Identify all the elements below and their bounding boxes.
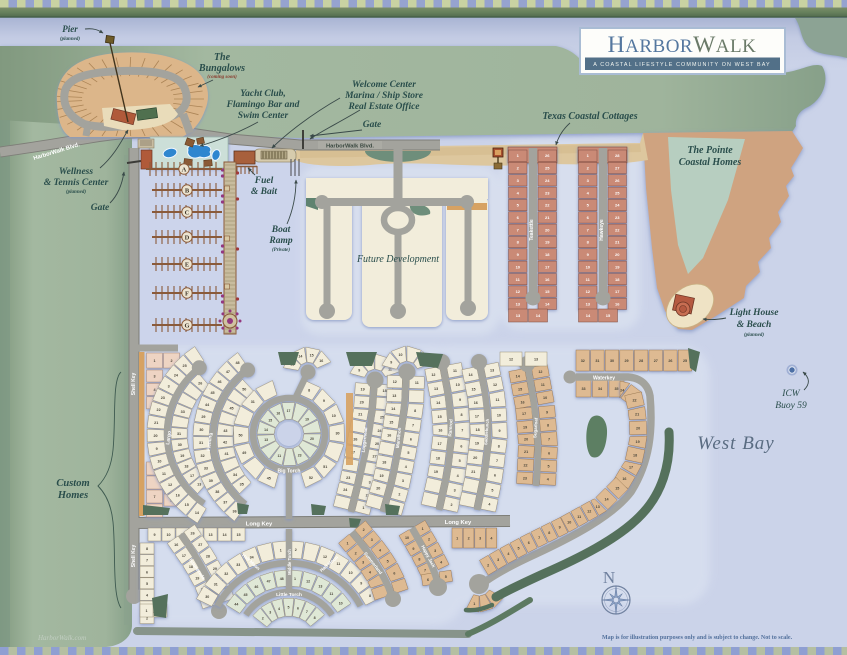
svg-text:10: 10: [516, 264, 521, 269]
svg-text:11: 11: [329, 592, 333, 596]
svg-text:31: 31: [214, 583, 218, 587]
svg-text:HARBORWALK: HARBORWALK: [608, 32, 757, 58]
svg-text:22: 22: [545, 203, 550, 208]
svg-text:15: 15: [438, 415, 442, 419]
svg-text:26: 26: [198, 382, 202, 386]
svg-text:C: C: [185, 209, 190, 216]
svg-text:19: 19: [475, 442, 479, 446]
svg-text:17: 17: [615, 289, 620, 294]
svg-text:16: 16: [176, 494, 180, 498]
svg-text:3: 3: [369, 480, 371, 484]
svg-text:21: 21: [615, 240, 620, 245]
svg-text:22: 22: [615, 227, 620, 232]
svg-text:3: 3: [168, 384, 170, 388]
svg-text:46: 46: [254, 585, 258, 589]
svg-text:21: 21: [545, 215, 550, 220]
svg-text:10: 10: [157, 460, 161, 464]
svg-text:2: 2: [428, 538, 430, 542]
svg-text:7: 7: [153, 495, 155, 499]
svg-text:10: 10: [349, 571, 353, 575]
svg-text:17: 17: [287, 409, 291, 413]
svg-text:A: A: [182, 166, 187, 173]
svg-text:24: 24: [545, 178, 550, 183]
svg-text:23: 23: [615, 215, 620, 220]
svg-text:3: 3: [497, 558, 499, 562]
svg-text:27: 27: [198, 543, 202, 547]
svg-text:18: 18: [382, 461, 386, 465]
svg-text:3: 3: [153, 375, 155, 379]
svg-text:37: 37: [223, 500, 227, 504]
svg-text:(planned): (planned): [744, 333, 764, 338]
svg-text:50: 50: [242, 388, 246, 392]
svg-text:30: 30: [610, 359, 614, 363]
svg-text:45: 45: [210, 391, 214, 395]
svg-text:13: 13: [596, 505, 600, 509]
svg-text:27: 27: [654, 359, 658, 363]
svg-text:D: D: [185, 234, 190, 241]
svg-text:1: 1: [346, 542, 348, 546]
svg-text:25: 25: [183, 364, 187, 368]
svg-text:11: 11: [577, 515, 581, 519]
svg-text:16: 16: [615, 301, 620, 306]
svg-text:19: 19: [305, 417, 309, 421]
svg-text:8: 8: [498, 444, 500, 448]
svg-text:45: 45: [229, 407, 233, 411]
svg-text:28: 28: [639, 359, 643, 363]
svg-text:8: 8: [308, 388, 310, 392]
svg-text:17: 17: [522, 412, 526, 416]
svg-text:14: 14: [586, 313, 591, 318]
svg-text:1: 1: [153, 359, 155, 363]
svg-text:47: 47: [226, 370, 230, 374]
svg-text:(Private): (Private): [272, 248, 290, 253]
svg-text:10: 10: [339, 602, 343, 606]
svg-text:45: 45: [244, 593, 248, 597]
svg-text:19: 19: [615, 264, 620, 269]
svg-text:A COASTAL LIFESTYLE COMMUNITY: A COASTAL LIFESTYLE COMMUNITY ON WEST BA…: [593, 62, 771, 68]
svg-text:29: 29: [624, 359, 628, 363]
svg-text:8: 8: [460, 413, 462, 417]
svg-text:47: 47: [267, 580, 271, 584]
svg-text:N: N: [603, 568, 615, 587]
svg-text:16: 16: [174, 543, 178, 547]
svg-text:12: 12: [516, 289, 521, 294]
svg-text:1: 1: [280, 548, 282, 552]
svg-text:6: 6: [297, 607, 299, 611]
svg-text:3: 3: [434, 549, 436, 553]
svg-text:27: 27: [615, 166, 620, 171]
svg-text:13: 13: [516, 313, 521, 318]
svg-text:14: 14: [545, 301, 550, 306]
svg-text:26: 26: [668, 359, 672, 363]
svg-text:11: 11: [453, 369, 457, 373]
svg-text:20: 20: [473, 456, 477, 460]
svg-text:16: 16: [319, 359, 323, 363]
svg-text:7: 7: [548, 437, 550, 441]
svg-text:2: 2: [398, 493, 400, 497]
svg-text:21: 21: [154, 421, 158, 425]
svg-text:15: 15: [545, 289, 550, 294]
svg-text:9: 9: [412, 547, 414, 551]
svg-text:20: 20: [310, 437, 314, 441]
svg-text:G: G: [184, 322, 189, 329]
svg-text:19: 19: [523, 425, 527, 429]
svg-text:51: 51: [323, 465, 327, 469]
svg-text:30: 30: [335, 432, 339, 436]
svg-text:14: 14: [536, 313, 541, 318]
svg-text:20: 20: [360, 400, 364, 404]
svg-text:Custom: Custom: [56, 478, 89, 489]
svg-text:32: 32: [224, 572, 228, 576]
svg-text:Flamingo Bar and: Flamingo Bar and: [226, 100, 300, 110]
svg-text:6: 6: [146, 570, 148, 574]
svg-text:13: 13: [208, 533, 212, 537]
svg-text:7: 7: [306, 610, 308, 614]
svg-text:Future Development: Future Development: [356, 254, 439, 265]
svg-text:Pier: Pier: [62, 24, 78, 34]
svg-text:25: 25: [380, 416, 384, 420]
svg-text:3: 3: [454, 489, 456, 493]
svg-text:10: 10: [586, 264, 591, 269]
svg-text:8: 8: [146, 547, 148, 551]
svg-text:Wellness: Wellness: [59, 167, 93, 177]
svg-text:1: 1: [422, 527, 424, 531]
svg-text:9: 9: [459, 398, 461, 402]
svg-text:42: 42: [223, 440, 227, 444]
svg-text:19: 19: [636, 440, 640, 444]
svg-text:13: 13: [318, 585, 322, 589]
svg-text:32: 32: [201, 454, 205, 458]
svg-text:18: 18: [615, 277, 620, 282]
svg-text:Shell Key: Shell Key: [131, 373, 137, 396]
svg-text:33: 33: [236, 563, 240, 567]
svg-text:5: 5: [459, 459, 461, 463]
svg-text:19: 19: [434, 470, 438, 474]
svg-text:6: 6: [528, 541, 530, 545]
svg-text:18: 18: [545, 252, 550, 257]
svg-text:25: 25: [615, 190, 620, 195]
svg-text:Ramp: Ramp: [268, 236, 292, 246]
svg-text:Little Torch: Little Torch: [276, 592, 302, 598]
svg-text:20: 20: [524, 438, 528, 442]
svg-text:25: 25: [545, 166, 550, 171]
svg-text:17: 17: [629, 466, 633, 470]
svg-text:15: 15: [185, 503, 189, 507]
svg-text:8: 8: [414, 409, 416, 413]
svg-text:12: 12: [509, 358, 513, 362]
svg-text:& Bait: & Bait: [251, 187, 277, 197]
svg-text:31: 31: [199, 441, 203, 445]
svg-text:9: 9: [323, 399, 325, 403]
svg-text:Middle Torch: Middle Torch: [287, 549, 292, 575]
svg-text:1: 1: [456, 537, 458, 541]
svg-text:3: 3: [479, 537, 481, 541]
svg-text:Welcome Center: Welcome Center: [352, 80, 416, 90]
svg-text:12: 12: [431, 373, 435, 377]
svg-text:13: 13: [534, 358, 538, 362]
svg-text:5: 5: [387, 559, 389, 563]
svg-text:5: 5: [445, 575, 447, 579]
svg-text:24: 24: [615, 203, 620, 208]
svg-text:23: 23: [545, 190, 550, 195]
svg-text:11: 11: [541, 383, 545, 387]
svg-text:& Tennis Center: & Tennis Center: [44, 178, 109, 188]
svg-text:16: 16: [520, 400, 524, 404]
svg-text:5: 5: [146, 582, 148, 586]
svg-text:10: 10: [497, 413, 501, 417]
svg-text:11: 11: [336, 562, 340, 566]
svg-text:15: 15: [268, 418, 272, 422]
svg-text:10: 10: [166, 533, 170, 537]
svg-text:21: 21: [635, 412, 639, 416]
svg-text:2: 2: [146, 617, 148, 621]
svg-text:19: 19: [545, 240, 550, 245]
svg-text:30: 30: [199, 428, 203, 432]
svg-text:19: 19: [379, 474, 383, 478]
svg-text:11: 11: [388, 368, 392, 372]
svg-text:15: 15: [615, 487, 619, 491]
svg-text:15: 15: [471, 387, 475, 391]
svg-text:Big Torch: Big Torch: [278, 469, 301, 475]
svg-text:12: 12: [493, 383, 497, 387]
svg-text:18: 18: [476, 428, 480, 432]
svg-text:8: 8: [314, 616, 316, 620]
svg-text:23: 23: [523, 477, 527, 481]
svg-text:26: 26: [545, 153, 550, 158]
svg-text:12: 12: [306, 579, 310, 583]
svg-text:46: 46: [217, 380, 221, 384]
svg-text:13: 13: [434, 387, 438, 391]
svg-text:19: 19: [180, 454, 184, 458]
svg-text:6: 6: [410, 437, 412, 441]
svg-text:15: 15: [310, 353, 314, 357]
svg-text:15: 15: [606, 313, 611, 318]
svg-text:13: 13: [516, 301, 521, 306]
svg-text:E: E: [185, 261, 189, 268]
svg-text:15: 15: [389, 420, 393, 424]
svg-text:Long Key: Long Key: [445, 520, 472, 526]
svg-text:13: 13: [392, 394, 396, 398]
svg-text:9: 9: [559, 526, 561, 530]
svg-text:14: 14: [264, 428, 268, 432]
svg-text:6: 6: [393, 572, 395, 576]
svg-text:13: 13: [197, 483, 201, 487]
svg-text:20: 20: [375, 442, 379, 446]
svg-text:3: 3: [362, 561, 364, 565]
svg-text:12: 12: [586, 289, 591, 294]
svg-text:9: 9: [153, 533, 155, 537]
svg-text:17: 17: [475, 415, 479, 419]
svg-text:21: 21: [471, 470, 475, 474]
svg-text:16: 16: [438, 428, 442, 432]
svg-text:Homes: Homes: [57, 490, 88, 501]
svg-text:7: 7: [146, 559, 148, 563]
svg-text:6: 6: [494, 474, 496, 478]
svg-text:14: 14: [298, 355, 302, 359]
svg-text:7: 7: [412, 424, 414, 428]
svg-text:50: 50: [238, 433, 242, 437]
svg-text:10: 10: [456, 383, 460, 387]
svg-text:The Pointe: The Pointe: [687, 145, 733, 156]
svg-text:7: 7: [461, 429, 463, 433]
svg-text:25: 25: [683, 359, 687, 363]
svg-text:16: 16: [474, 401, 478, 405]
svg-text:3: 3: [402, 479, 404, 483]
svg-text:41: 41: [225, 452, 229, 456]
svg-text:B: B: [185, 187, 190, 194]
svg-text:2: 2: [487, 564, 489, 568]
svg-text:(planned): (planned): [66, 190, 86, 195]
svg-text:Swim Center: Swim Center: [238, 111, 289, 121]
svg-text:6: 6: [548, 451, 550, 455]
svg-text:9: 9: [360, 582, 362, 586]
svg-text:18: 18: [184, 464, 188, 468]
svg-text:26: 26: [353, 438, 357, 442]
svg-text:16: 16: [276, 412, 280, 416]
svg-text:Waterkey: Waterkey: [593, 376, 615, 382]
svg-text:Coastal Homes: Coastal Homes: [679, 157, 742, 168]
svg-text:38: 38: [215, 490, 219, 494]
svg-text:12: 12: [538, 370, 542, 374]
svg-text:22: 22: [632, 399, 636, 403]
svg-text:7: 7: [496, 459, 498, 463]
svg-text:22: 22: [157, 408, 161, 412]
svg-text:13: 13: [490, 369, 494, 373]
svg-text:30: 30: [205, 595, 209, 599]
svg-text:2: 2: [295, 548, 297, 552]
svg-text:49: 49: [242, 451, 246, 455]
svg-text:Light House: Light House: [729, 308, 780, 318]
svg-text:2: 2: [366, 493, 368, 497]
svg-text:11: 11: [162, 472, 166, 476]
svg-text:8: 8: [548, 531, 550, 535]
svg-text:1: 1: [473, 602, 475, 606]
svg-text:17: 17: [190, 474, 194, 478]
svg-text:Buoy 59: Buoy 59: [775, 401, 807, 411]
svg-text:1: 1: [145, 609, 147, 613]
svg-text:7: 7: [538, 536, 540, 540]
svg-text:16: 16: [387, 434, 391, 438]
svg-text:17: 17: [438, 442, 442, 446]
svg-text:Fuel: Fuel: [254, 176, 274, 186]
svg-text:16: 16: [545, 277, 550, 282]
svg-text:16: 16: [622, 477, 626, 481]
svg-text:HarborWalk.com: HarborWalk.com: [37, 634, 86, 642]
svg-text:17: 17: [182, 554, 186, 558]
svg-text:23: 23: [346, 476, 350, 480]
svg-text:11: 11: [278, 454, 282, 458]
svg-text:11: 11: [496, 398, 500, 402]
svg-text:32: 32: [581, 359, 585, 363]
svg-text:19: 19: [195, 576, 199, 580]
svg-text:33: 33: [581, 387, 585, 391]
svg-text:8: 8: [547, 424, 549, 428]
svg-text:44: 44: [234, 603, 238, 607]
svg-text:18: 18: [383, 389, 387, 393]
svg-text:10: 10: [543, 396, 547, 400]
svg-text:The: The: [214, 52, 231, 63]
svg-text:Gate: Gate: [91, 203, 110, 213]
svg-text:31: 31: [251, 400, 255, 404]
svg-text:20: 20: [545, 227, 550, 232]
svg-text:28: 28: [615, 153, 620, 158]
svg-text:36: 36: [233, 510, 237, 514]
svg-text:39: 39: [209, 479, 213, 483]
svg-text:18: 18: [436, 456, 440, 460]
svg-text:10: 10: [332, 414, 336, 418]
svg-text:2: 2: [170, 359, 172, 363]
svg-text:12: 12: [393, 380, 397, 384]
svg-text:18: 18: [633, 453, 637, 457]
svg-text:33: 33: [181, 410, 185, 414]
svg-text:33: 33: [204, 467, 208, 471]
svg-text:Gate: Gate: [363, 120, 382, 130]
svg-text:9: 9: [498, 429, 500, 433]
svg-text:31: 31: [595, 359, 599, 363]
svg-text:3: 3: [371, 538, 373, 542]
svg-text:Shell Key: Shell Key: [131, 545, 137, 568]
svg-text:12: 12: [323, 555, 327, 559]
svg-text:8: 8: [369, 594, 371, 598]
svg-text:17: 17: [545, 264, 550, 269]
svg-text:5: 5: [491, 488, 493, 492]
svg-text:23: 23: [298, 453, 302, 457]
svg-text:35: 35: [240, 483, 244, 487]
svg-text:9: 9: [156, 447, 158, 451]
svg-text:22: 22: [523, 463, 527, 467]
svg-text:29: 29: [201, 415, 205, 419]
svg-text:2: 2: [355, 551, 357, 555]
svg-text:HarborWalk Blvd.: HarborWalk Blvd.: [326, 144, 374, 150]
svg-text:1: 1: [294, 577, 296, 581]
svg-text:48: 48: [235, 361, 239, 365]
svg-text:ICW: ICW: [781, 389, 801, 399]
svg-text:Teakettle: Teakettle: [529, 219, 535, 241]
svg-text:9: 9: [358, 369, 360, 373]
svg-text:12: 12: [168, 483, 172, 487]
svg-text:3: 3: [269, 611, 271, 615]
svg-text:2: 2: [363, 528, 365, 532]
svg-text:Map is for illustration purpos: Map is for illustration purposes only an…: [602, 635, 793, 641]
svg-text:6: 6: [427, 578, 429, 582]
svg-text:20: 20: [153, 434, 157, 438]
svg-text:10: 10: [567, 521, 571, 525]
svg-text:20: 20: [376, 487, 380, 491]
svg-text:Yacht Club,: Yacht Club,: [240, 89, 286, 99]
svg-text:19: 19: [361, 387, 365, 391]
svg-text:(planned): (planned): [60, 37, 80, 42]
svg-text:10: 10: [399, 353, 403, 357]
svg-text:2: 2: [450, 503, 452, 507]
svg-text:43: 43: [223, 429, 227, 433]
svg-text:Marina / Ship Store: Marina / Ship Store: [344, 91, 424, 101]
svg-text:4: 4: [278, 607, 280, 611]
svg-text:Boat: Boat: [271, 225, 291, 235]
svg-text:48: 48: [280, 577, 284, 581]
svg-text:15: 15: [518, 387, 522, 391]
svg-text:52: 52: [309, 476, 313, 480]
svg-text:10: 10: [405, 536, 409, 540]
svg-text:8: 8: [418, 558, 420, 562]
svg-text:West Bay: West Bay: [697, 433, 774, 454]
svg-text:11: 11: [415, 381, 419, 385]
svg-text:29: 29: [213, 567, 217, 571]
svg-text:26: 26: [191, 532, 195, 536]
svg-text:13: 13: [586, 301, 591, 306]
svg-text:31: 31: [177, 432, 181, 436]
svg-text:& Beach: & Beach: [737, 320, 772, 330]
svg-text:9: 9: [390, 361, 392, 365]
